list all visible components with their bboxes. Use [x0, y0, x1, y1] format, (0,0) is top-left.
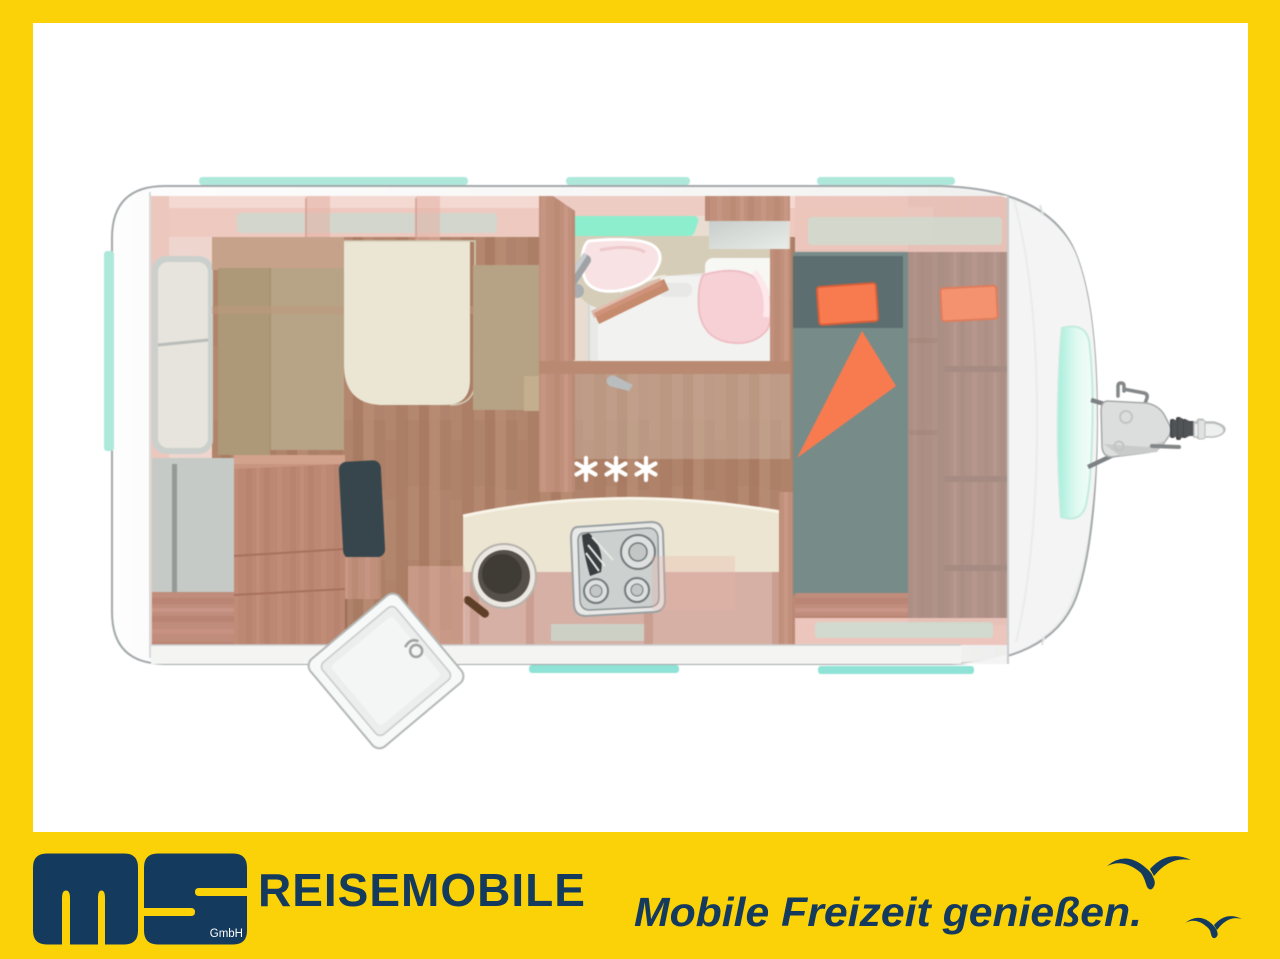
svg-text:REISEMOBILE: REISEMOBILE — [258, 864, 586, 916]
svg-text:GmbH: GmbH — [210, 928, 243, 940]
svg-text:Mobile Freizeit genießen.: Mobile Freizeit genießen. — [634, 889, 1142, 935]
